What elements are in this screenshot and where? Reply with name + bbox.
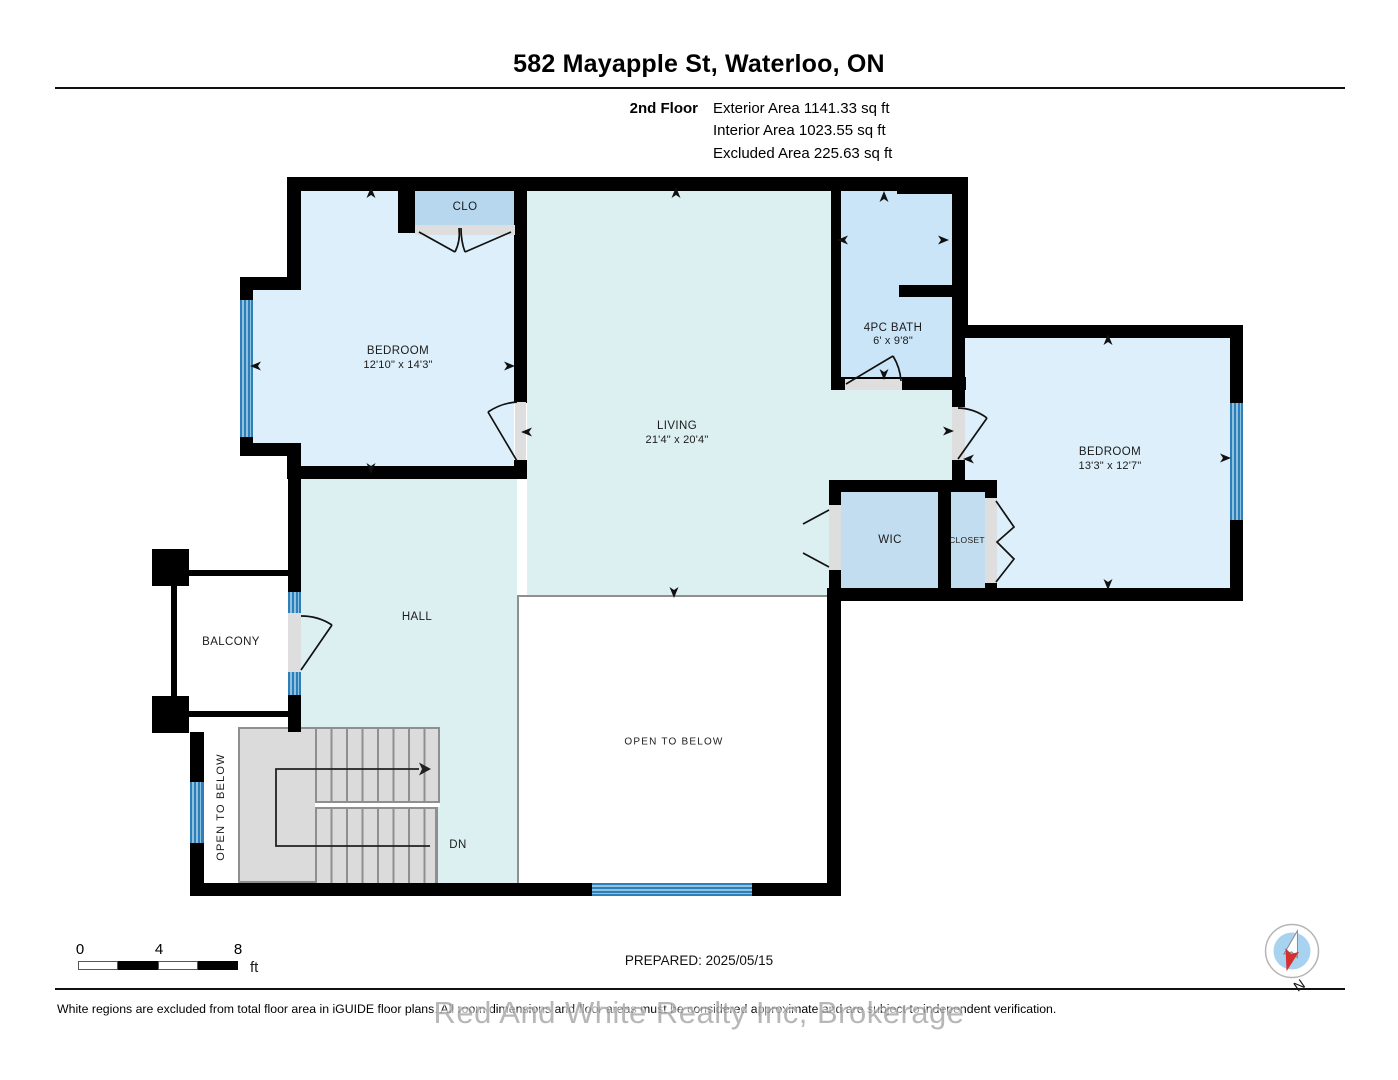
wall xyxy=(985,583,997,601)
window xyxy=(288,592,301,613)
door-sill xyxy=(515,402,526,460)
living-dims: 21'4" x 20'4" xyxy=(646,434,709,446)
door-sill xyxy=(415,225,515,235)
wall xyxy=(829,480,997,492)
wall xyxy=(514,177,527,403)
door-sill xyxy=(985,498,997,583)
page-title: 582 Mayapple St, Waterloo, ON xyxy=(0,50,1398,79)
wall xyxy=(827,588,1243,601)
compass-north-label: N xyxy=(1290,976,1307,995)
balcony-rail xyxy=(171,586,177,696)
wall xyxy=(829,570,841,588)
brokerage-watermark: Red And White Realty Inc, Brokerage xyxy=(0,995,1398,1031)
window xyxy=(288,672,301,695)
wall xyxy=(287,466,527,479)
hall-label: HALL xyxy=(402,611,432,623)
wall xyxy=(952,325,1243,338)
stair-flight-lower xyxy=(315,807,437,885)
bath-fill xyxy=(841,191,952,377)
wall xyxy=(985,480,997,498)
clo-label: CLO xyxy=(453,201,478,213)
wall xyxy=(829,492,841,505)
prepared-date: PREPARED: 2025/05/15 xyxy=(0,953,1398,968)
excluded-area: Excluded Area 225.63 sq ft xyxy=(713,145,892,162)
bedroom1-fill xyxy=(253,290,301,443)
door-sill xyxy=(845,379,902,390)
balcony-rail xyxy=(189,711,289,717)
window xyxy=(190,782,204,843)
wall xyxy=(827,601,841,883)
floorplan-page: 582 Mayapple St, Waterloo, ON 2nd Floor … xyxy=(0,0,1398,1080)
wall xyxy=(899,285,954,297)
window xyxy=(1230,403,1243,520)
wall xyxy=(288,479,301,592)
wall xyxy=(831,191,841,390)
header-divider xyxy=(55,87,1345,89)
bath-dims: 6' x 9'8" xyxy=(873,335,913,347)
stairs-dn-label: DN xyxy=(449,839,466,851)
floor-label: 2nd Floor xyxy=(602,100,698,117)
exterior-area: Exterior Area 1141.33 sq ft xyxy=(713,100,890,117)
living-label: LIVING xyxy=(657,420,697,432)
window xyxy=(240,300,253,437)
wall xyxy=(288,695,301,732)
door-sill xyxy=(952,407,965,460)
wall xyxy=(514,460,527,479)
bedroom1-label: BEDROOM xyxy=(367,345,429,357)
wic-label: WIC xyxy=(878,534,902,546)
window xyxy=(592,883,752,896)
bedroom2-dims: 13'3" x 12'7" xyxy=(1079,460,1142,472)
living-fill xyxy=(527,491,829,601)
open-to-below-stair-label: OPEN TO BELOW xyxy=(215,753,227,861)
stair-flight-upper xyxy=(315,727,440,803)
wall xyxy=(952,338,965,407)
wall xyxy=(287,177,968,191)
door-sill xyxy=(829,505,841,570)
balcony-post xyxy=(152,549,189,586)
footer-divider xyxy=(55,988,1345,990)
interior-area: Interior Area 1023.55 sq ft xyxy=(713,122,886,139)
wall xyxy=(398,190,415,233)
bedroom1-dims: 12'10" x 14'3" xyxy=(363,359,432,371)
closet-label: CLOSET xyxy=(949,535,985,545)
living-fill xyxy=(527,390,952,491)
bedroom2-label: BEDROOM xyxy=(1079,446,1141,458)
balcony-post xyxy=(152,696,189,733)
bath-label: 4PC BATH xyxy=(864,322,923,334)
open-to-below-main-label: OPEN TO BELOW xyxy=(624,737,723,748)
staircase xyxy=(238,727,438,883)
living-fill xyxy=(527,191,831,391)
wall xyxy=(952,191,968,338)
door-sill xyxy=(288,613,301,672)
balcony-label: BALCONY xyxy=(202,636,260,648)
wall xyxy=(287,177,301,290)
balcony-rail xyxy=(189,570,289,576)
